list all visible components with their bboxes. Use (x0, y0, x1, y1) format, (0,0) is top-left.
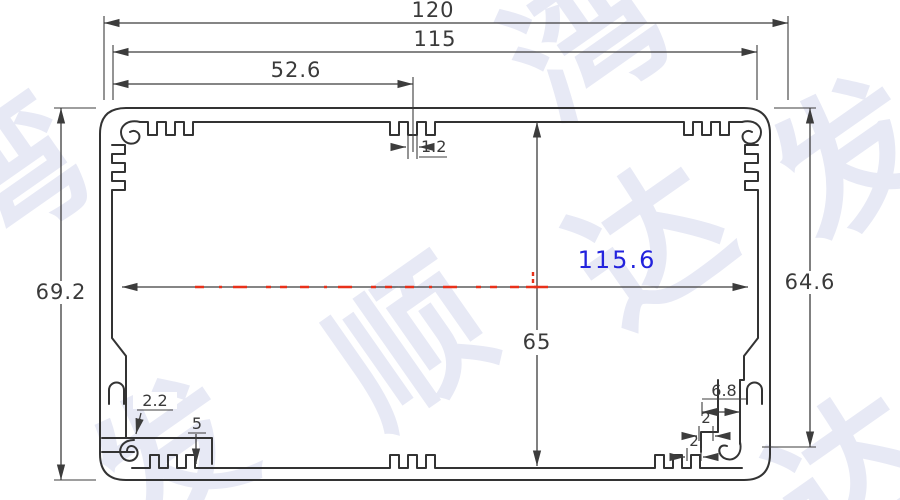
watermark-char: 发 (61, 346, 284, 500)
dim-2-2-label: 2.2 (142, 391, 167, 410)
top-left-corner-curl (121, 121, 140, 143)
bottom-right-boss-curl (719, 442, 740, 460)
watermark-char: 达 (741, 361, 900, 500)
dim-115-label: 115 (413, 27, 456, 51)
dim-5-label: 5 (192, 414, 202, 433)
watermark-char: 顺 (301, 231, 524, 460)
bottom-right-keyhole-channel (747, 383, 762, 404)
watermark-layer: 湾 发 顺 达 湾 发 达 (0, 0, 900, 500)
dim-52-6-label: 52.6 (271, 58, 322, 82)
dim-64-6-label: 64.6 (785, 270, 836, 294)
dim-69-2-label: 69.2 (36, 280, 87, 304)
inner-top-edge (140, 122, 742, 135)
dim-120-label: 120 (411, 0, 454, 22)
dim-1-2-label: 1.2 (421, 137, 446, 156)
extrusion-profile-drawing: 湾 发 顺 达 湾 发 达 (0, 0, 900, 500)
dim-2-wall-label: 2 (689, 432, 699, 450)
dim-6-8-label: 6.8 (711, 381, 736, 400)
dim-65-label: 65 (523, 330, 552, 354)
dim-2-slot-label: 2 (701, 409, 711, 427)
drawing-canvas: 湾 发 顺 达 湾 发 达 (0, 0, 900, 500)
watermark-char: 发 (741, 46, 900, 275)
dim-115-6-label: 115.6 (578, 246, 657, 274)
